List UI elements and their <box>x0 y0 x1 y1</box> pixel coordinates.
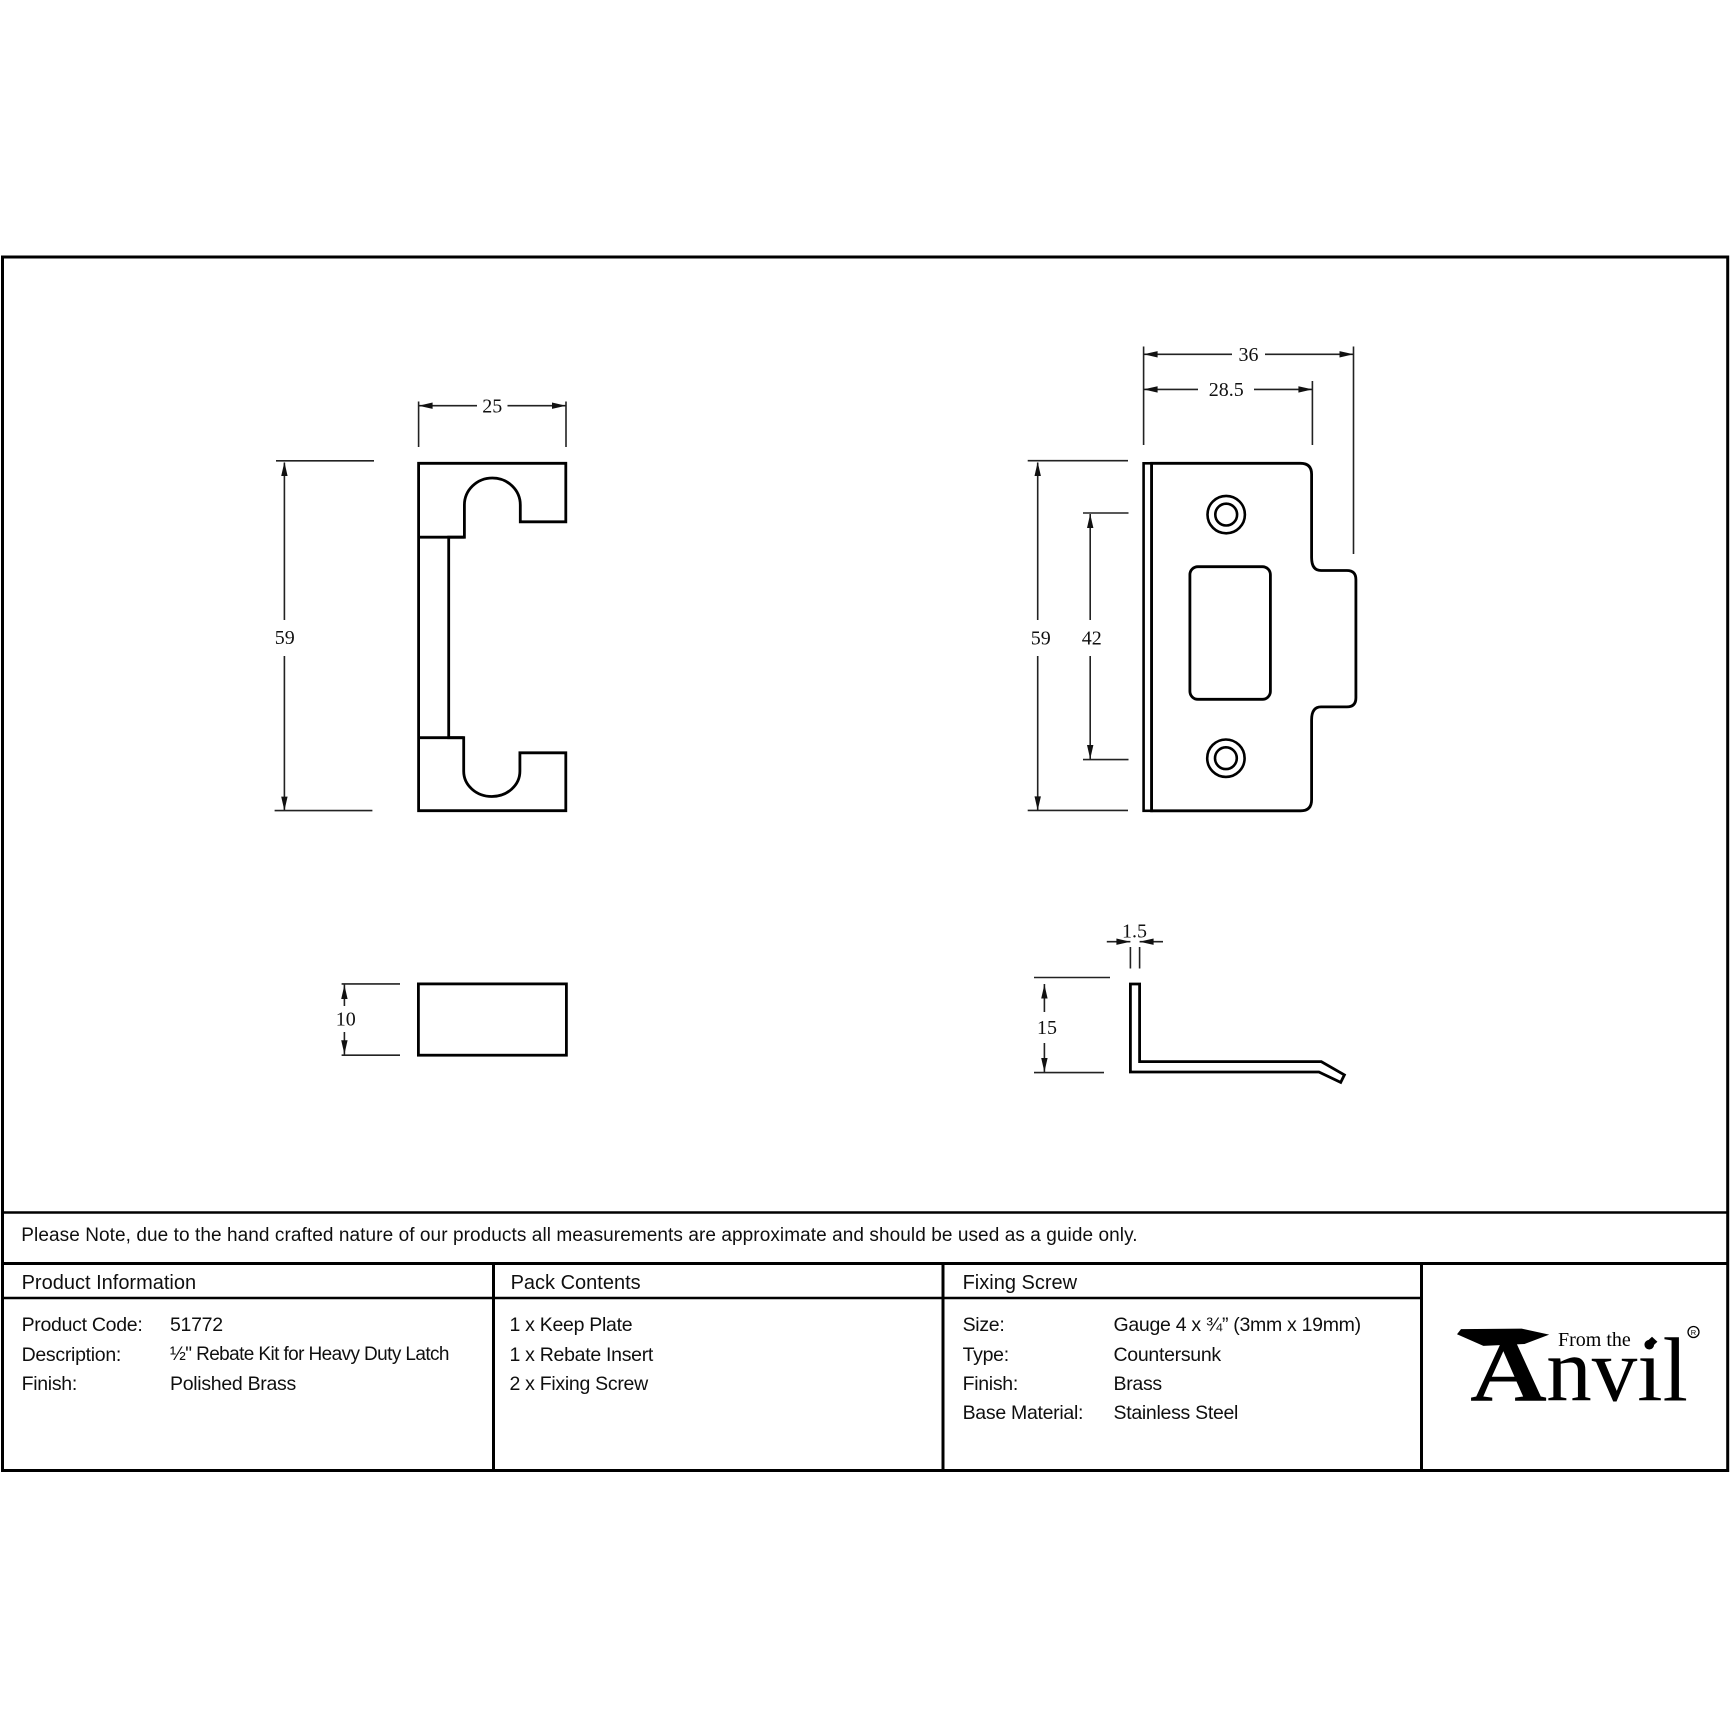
svg-text:28.5: 28.5 <box>1209 379 1244 401</box>
svg-text:R: R <box>1691 1328 1697 1337</box>
svg-text:59: 59 <box>275 627 295 649</box>
svg-text:1.5: 1.5 <box>1122 921 1147 943</box>
svg-text:15: 15 <box>1037 1017 1057 1039</box>
svg-text:10: 10 <box>336 1009 356 1031</box>
svg-text:42: 42 <box>1082 628 1102 650</box>
svg-text:nvil: nvil <box>1546 1320 1688 1421</box>
svg-text:25: 25 <box>482 395 502 417</box>
svg-text:36: 36 <box>1239 344 1259 366</box>
svg-text:59: 59 <box>1031 628 1051 650</box>
